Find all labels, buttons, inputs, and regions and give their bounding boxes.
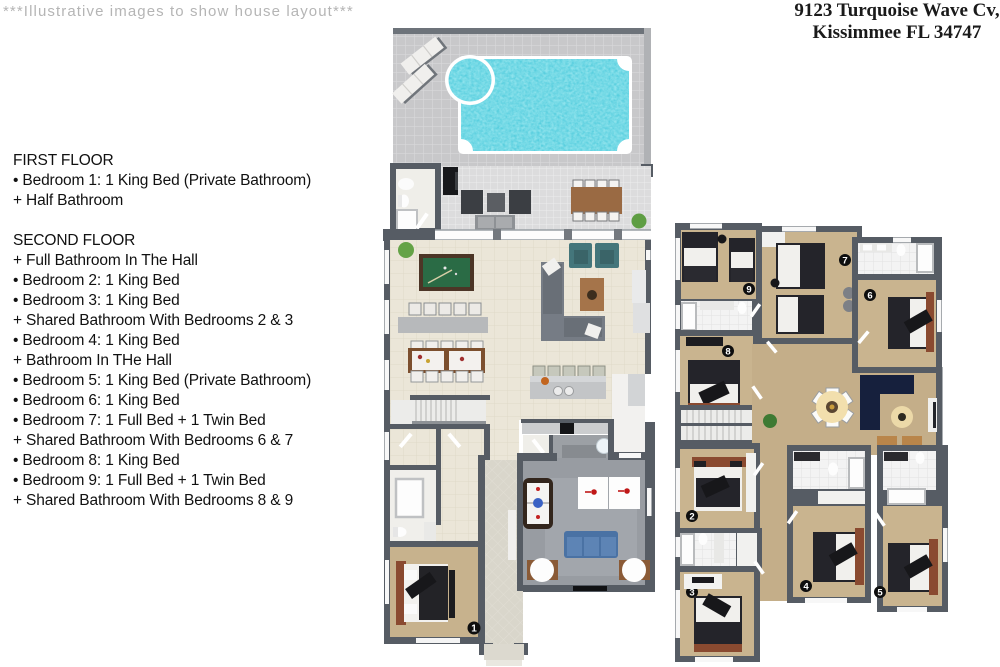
- svg-text:9: 9: [746, 285, 751, 296]
- svg-text:5: 5: [877, 588, 883, 599]
- svg-text:6: 6: [867, 291, 872, 302]
- svg-text:3: 3: [689, 588, 694, 599]
- svg-text:4: 4: [803, 582, 809, 593]
- svg-text:7: 7: [842, 256, 847, 267]
- svg-text:8: 8: [725, 347, 730, 358]
- svg-text:1: 1: [471, 624, 477, 635]
- svg-text:2: 2: [689, 512, 694, 523]
